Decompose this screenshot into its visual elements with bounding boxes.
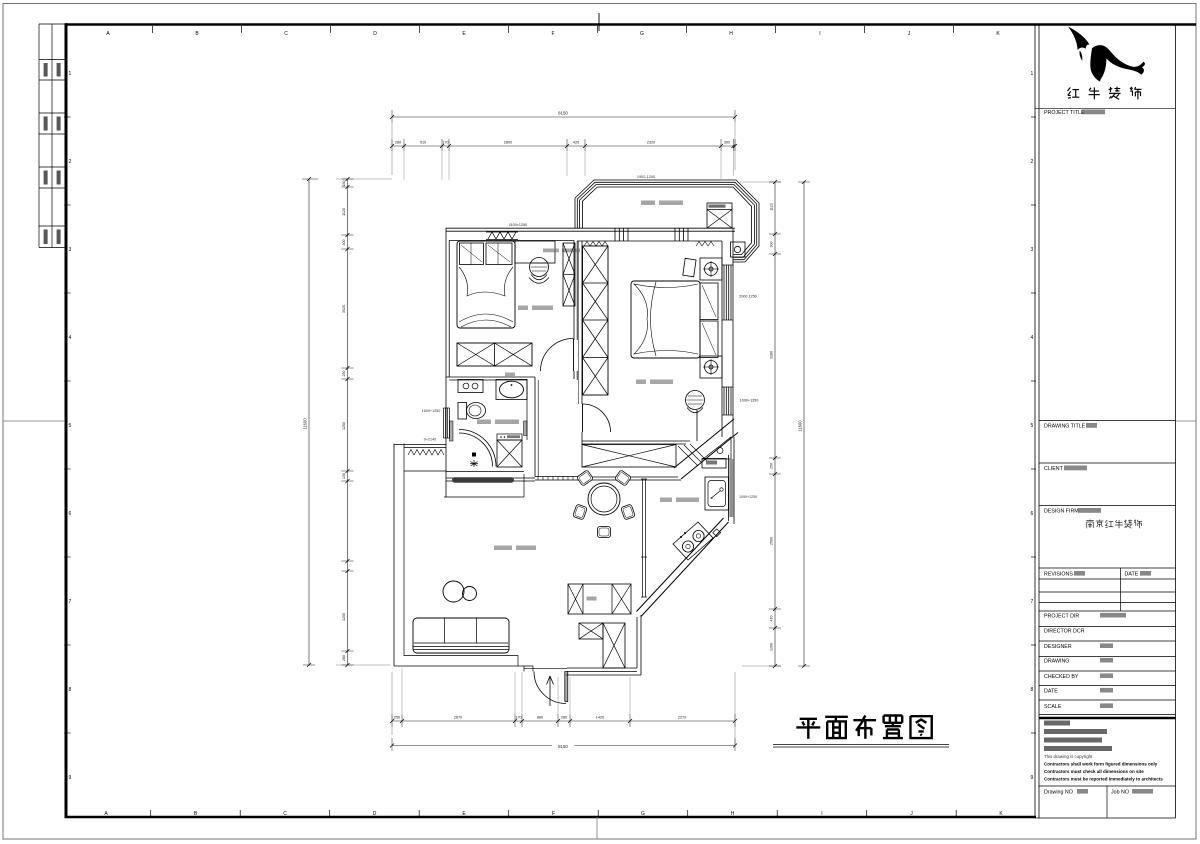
svg-text:11600: 11600 [798,420,803,432]
svg-text:9: 9 [69,775,72,781]
svg-text:1600+1250: 1600+1250 [422,409,441,413]
svg-text:410: 410 [770,616,774,622]
svg-text:Job NO: Job NO [1111,790,1129,796]
svg-text:130: 130 [342,473,346,479]
svg-text:CHECKED BY: CHECKED BY [1044,674,1079,680]
svg-text:C: C [284,31,288,37]
svg-text:1000+1350: 1000+1350 [740,399,759,403]
svg-text:DRAWING: DRAWING [1044,659,1069,665]
svg-text:5: 5 [1031,423,1034,429]
svg-text:DESIGN FIRM: DESIGN FIRM [1044,509,1079,515]
svg-text:SCALE: SCALE [1044,704,1062,710]
svg-text:1420: 1420 [596,716,604,720]
svg-text:170: 170 [442,141,448,145]
svg-text:Contractors must be reported i: Contractors must be reported immediately… [1044,777,1163,782]
svg-text:F: F [552,811,555,817]
svg-text:4250: 4250 [342,613,346,621]
svg-text:PROJECT DIR: PROJECT DIR [1044,614,1079,620]
svg-text:1: 1 [69,71,72,77]
svg-text:H: H [731,811,735,817]
svg-text:3180: 3180 [770,351,774,359]
svg-text:Drawing NO: Drawing NO [1044,790,1073,796]
svg-text:4: 4 [69,335,72,341]
svg-text:H: H [729,31,733,37]
svg-text:F: F [551,31,554,37]
svg-text:CLIENT: CLIENT [1044,466,1064,472]
svg-text:2000 1250: 2000 1250 [739,295,756,299]
svg-text:300: 300 [724,141,730,145]
svg-text:DESIGNER: DESIGNER [1044,644,1072,650]
svg-text:3: 3 [1031,247,1034,253]
svg-text:REVISIONS: REVISIONS [1044,572,1073,578]
svg-text:I: I [821,811,822,817]
svg-text:11600: 11600 [303,418,308,430]
svg-text:250: 250 [394,716,400,720]
svg-text:2500: 2500 [770,537,774,545]
svg-text:6: 6 [69,511,72,517]
svg-text:G: G [640,31,644,37]
svg-text:2670: 2670 [454,716,462,720]
svg-text:2: 2 [1031,159,1034,165]
svg-text:1250: 1250 [342,422,346,430]
svg-text:420: 420 [573,141,579,145]
svg-text:2: 2 [69,159,72,165]
svg-text:910: 910 [420,141,426,145]
svg-text:250: 250 [770,463,774,469]
svg-text:DATE: DATE [1044,689,1058,695]
svg-text:Contractors must check all dim: Contractors must check all dimensions on… [1044,769,1144,774]
svg-text:8150: 8150 [558,111,568,116]
svg-text:7: 7 [69,599,72,605]
svg-text:6: 6 [1031,511,1034,517]
svg-text:1090+1250: 1090+1250 [739,495,757,499]
svg-text:7: 7 [1031,599,1034,605]
svg-text:PROJECT TITLE: PROJECT TITLE [1044,110,1085,116]
svg-text:250: 250 [342,371,346,377]
svg-text:1260: 1260 [770,643,774,651]
svg-text:2270: 2270 [678,716,686,720]
svg-text:3025: 3025 [342,305,346,313]
svg-text:Contractors shall work form fi: Contractors shall work form figured dime… [1044,762,1158,767]
svg-text:1123: 1123 [770,203,774,211]
svg-text:1120: 1120 [342,208,346,216]
svg-text:DRAWING TITLE: DRAWING TITLE [1044,424,1086,430]
svg-text:DATE: DATE [1125,572,1139,578]
svg-text:8: 8 [1031,687,1034,693]
svg-text:150: 150 [342,181,346,187]
svg-text:170: 170 [515,716,521,720]
svg-text:3: 3 [69,247,72,253]
svg-text:300: 300 [342,240,346,246]
svg-text:280: 280 [395,141,401,145]
svg-text:0+2140: 0+2140 [424,438,436,442]
svg-text:1: 1 [1031,71,1034,77]
svg-text:This drawing is copyright: This drawing is copyright [1044,754,1093,759]
svg-text:8: 8 [69,687,72,693]
svg-text:D: D [373,31,377,37]
svg-text:2800: 2800 [504,141,512,145]
svg-text:1900-1200: 1900-1200 [637,175,655,179]
svg-text:1100×1250: 1100×1250 [509,223,527,227]
svg-text:280: 280 [561,716,567,720]
svg-text:4: 4 [1031,335,1034,341]
svg-text:G: G [641,811,645,817]
svg-text:DIRECTOR DCR: DIRECTOR DCR [1044,629,1085,635]
svg-text:2320: 2320 [647,141,655,145]
svg-text:C: C [283,811,287,817]
svg-text:9: 9 [1031,775,1034,781]
svg-text:5: 5 [69,423,72,429]
svg-text:I: I [819,31,820,37]
svg-text:D: D [373,811,377,817]
svg-text:860: 860 [537,716,543,720]
svg-text:300: 300 [770,242,774,248]
svg-text:8150: 8150 [558,744,568,749]
svg-text:280: 280 [342,655,346,661]
